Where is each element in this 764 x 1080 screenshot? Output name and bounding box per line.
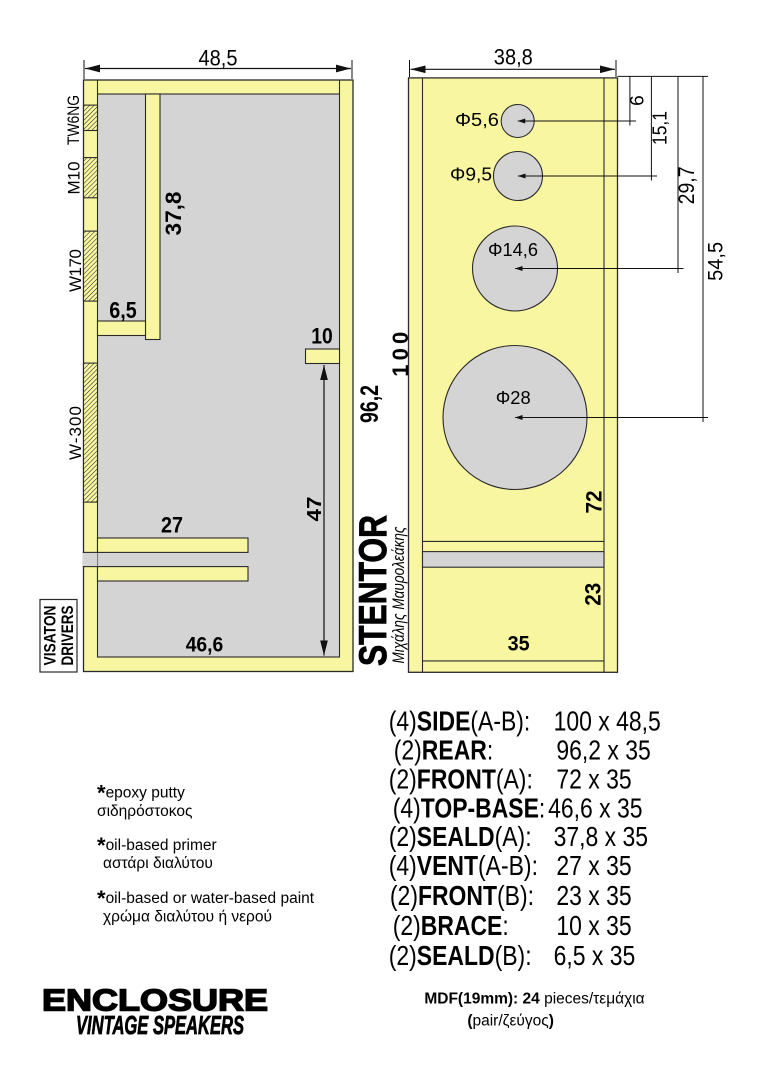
svg-text:DRIVERS: DRIVERS (58, 606, 77, 666)
svg-text:M10: M10 (65, 161, 84, 194)
svg-text:σιδηρόστοκος: σιδηρόστοκος (97, 803, 192, 820)
svg-text:100 x 48,5: 100 x 48,5 (554, 707, 661, 738)
svg-text:MDF(19mm): 24 pieces/τεμάχια: MDF(19mm): 24 pieces/τεμάχια (424, 990, 644, 1007)
svg-text:Μιχάλης Μαυρολεάκης: Μιχάλης Μαυρολεάκης (389, 526, 408, 664)
svg-text:35: 35 (508, 632, 530, 655)
svg-text:(2)SEALD(B):: (2)SEALD(B): (389, 941, 532, 972)
svg-text:10 x 35: 10 x 35 (556, 911, 631, 942)
svg-text:46,6 x 35: 46,6 x 35 (548, 793, 642, 824)
svg-text:54,5: 54,5 (705, 242, 728, 281)
svg-text:23: 23 (581, 583, 606, 606)
svg-text:(2)FRONT(A):: (2)FRONT(A): (389, 764, 533, 795)
svg-text:6,5 x 35: 6,5 x 35 (554, 941, 636, 972)
svg-text:Φ9,5: Φ9,5 (450, 164, 492, 185)
svg-text:*epoxy putty: *epoxy putty (97, 780, 185, 805)
svg-text:W170: W170 (66, 249, 85, 292)
svg-text:(2)FRONT(B):: (2)FRONT(B): (390, 881, 534, 912)
svg-text:(2)BRACE:: (2)BRACE: (393, 911, 509, 942)
svg-text:38,8: 38,8 (494, 45, 533, 70)
svg-text:46,6: 46,6 (186, 633, 224, 656)
svg-text:47: 47 (303, 497, 326, 522)
svg-text:(4)VENT(A-B):: (4)VENT(A-B): (389, 851, 538, 882)
svg-text:100: 100 (388, 332, 413, 377)
svg-text:(4)TOP-BASE:: (4)TOP-BASE: (393, 793, 546, 824)
svg-text:23 x 35: 23 x 35 (556, 881, 631, 912)
svg-text:χρώμα διαλύτου ή νερού: χρώμα διαλύτου ή νερού (103, 909, 272, 926)
svg-text:(pair/ζεύγος): (pair/ζεύγος) (467, 1012, 554, 1029)
svg-text:(2)REAR:: (2)REAR: (394, 736, 493, 767)
svg-text:*oil-based or water-based pain: *oil-based or water-based paint (97, 886, 315, 911)
svg-text:48,5: 48,5 (199, 46, 238, 71)
svg-text:10: 10 (311, 324, 333, 349)
svg-text:96,2: 96,2 (356, 385, 384, 423)
svg-text:Φ14,6: Φ14,6 (488, 239, 538, 260)
svg-text:6: 6 (628, 95, 649, 106)
svg-text:27 x 35: 27 x 35 (556, 851, 631, 882)
svg-text:6,5: 6,5 (109, 297, 137, 323)
svg-text:VISATON: VISATON (40, 606, 59, 666)
svg-text:(2)SEALD(A):: (2)SEALD(A): (389, 822, 532, 853)
svg-text:27: 27 (161, 512, 183, 537)
svg-text:37,8: 37,8 (161, 192, 186, 236)
svg-text:72 x 35: 72 x 35 (556, 764, 631, 795)
svg-text:29,7: 29,7 (674, 166, 699, 204)
svg-text:W-300: W-300 (66, 406, 85, 460)
svg-text:Φ5,6: Φ5,6 (455, 109, 499, 130)
svg-text:15,1: 15,1 (650, 111, 672, 145)
svg-text:Φ28: Φ28 (496, 387, 531, 408)
svg-text:96,2 x 35: 96,2 x 35 (556, 736, 650, 767)
svg-text:37,8 x 35: 37,8 x 35 (554, 822, 648, 853)
svg-text:TW6NG: TW6NG (64, 95, 83, 145)
svg-text:72: 72 (582, 491, 607, 514)
svg-text:VINTAGE SPEAKERS: VINTAGE SPEAKERS (76, 1010, 244, 1040)
svg-text:αστάρι διαλύτου: αστάρι διαλύτου (103, 855, 213, 872)
svg-text:(4)SIDE(A-B):: (4)SIDE(A-B): (389, 707, 531, 738)
